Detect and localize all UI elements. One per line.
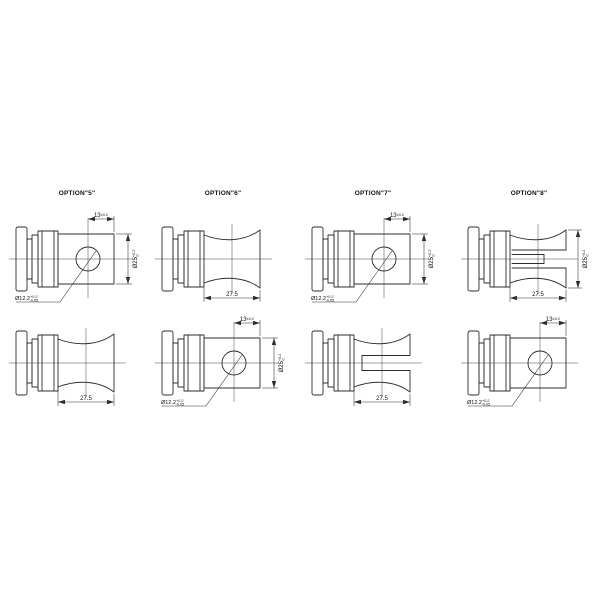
centerlines [461, 224, 578, 294]
option-column-2: OPTION"6" 27.5 [152, 190, 294, 410]
dim-hole-offset-label: 13±0.2 [546, 317, 560, 323]
dim-outer-dia-label: Ø25+0.20 [278, 354, 286, 373]
hole-dia-label: Ø12.2+0.2-0.05 [467, 399, 490, 406]
option-3-label: OPTION"7" [302, 190, 444, 202]
option-column-1: OPTION"5" 13±0.2 Ø25+0 [6, 190, 148, 410]
dim-hole-offset [540, 320, 566, 336]
option-2-top-view: 27.5 [152, 206, 294, 306]
leader-hole-dia [468, 355, 548, 406]
dim-hole-offset-label: 13±0.2 [94, 213, 108, 219]
leader-hole-dia [16, 251, 96, 302]
option-1-top-view: 13±0.2 Ø25+0.20 Ø12.2+0.2-0.05 [6, 206, 148, 306]
option-column-3: OPTION"7" 13±0.2 Ø25+0 [302, 190, 444, 410]
option-4-top-view: Ø25+0.20 27.5 [458, 206, 600, 306]
dim-hole-offset [384, 216, 410, 232]
option-1-label: OPTION"5" [6, 190, 148, 202]
hole-dia-label: Ø12.2+0.2-0.05 [311, 295, 334, 302]
dim-outer-dia-label: Ø25+0.20 [132, 250, 140, 269]
dim-body-width-label: 27.5 [80, 396, 92, 402]
dim-body-width-label: 27.5 [532, 292, 544, 298]
dim-hole-offset-label: 13±0.2 [390, 213, 404, 219]
dim-body-width-label: 27.5 [376, 396, 388, 402]
centerlines [305, 328, 422, 398]
option-3-top-view: 13±0.2 Ø25+0.20 Ø12.2+0.2-0.05 [302, 206, 444, 306]
option-4-bottom-view: 13±0.2 Ø12.2+0.2-0.05 [458, 310, 600, 410]
option-1-bottom-view: 27.5 [6, 310, 148, 410]
dim-hole-offset-label: 13±0.2 [240, 317, 254, 323]
dim-body-width-label: 27.5 [226, 292, 238, 298]
leader-hole-dia [162, 355, 242, 406]
centerlines [461, 322, 578, 402]
option-2-bottom-view: 13±0.2 Ø25+0.20 Ø12.2+0.2-0.05 [152, 310, 294, 410]
option-3-bottom-view: 27.5 [302, 310, 444, 410]
dim-outer-dia-label: Ø25+0.20 [582, 250, 590, 269]
leader-hole-dia [312, 251, 392, 302]
option-2-label: OPTION"6" [152, 190, 294, 202]
hole-dia-label: Ø12.2+0.2-0.05 [161, 399, 184, 406]
centerlines [305, 218, 428, 298]
dim-outer-dia-label: Ø25+0.20 [428, 250, 436, 269]
option-column-4: OPTION"8" Ø25+0.20 [458, 190, 600, 410]
drawing-canvas: OPTION"5" 13±0.2 Ø25+0 [0, 0, 600, 600]
hole-dia-label: Ø12.2+0.2-0.05 [15, 295, 38, 302]
dim-hole-offset [88, 216, 114, 232]
option-4-label: OPTION"8" [458, 190, 600, 202]
dim-hole-offset [234, 320, 260, 336]
